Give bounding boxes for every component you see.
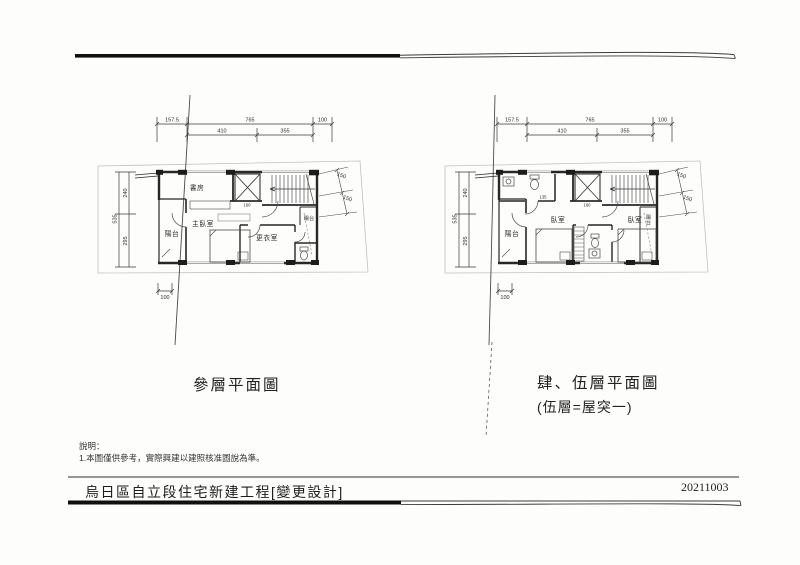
dim-label: 295 xyxy=(463,236,469,245)
closet-cabinet xyxy=(218,214,250,221)
bed xyxy=(210,230,250,262)
dim-label: 355 xyxy=(620,129,629,135)
project-title: 烏日區自立段住宅新建工程[變更設計] xyxy=(85,482,344,502)
boundary-line xyxy=(489,95,495,345)
plan-caption-4f-5f-block: 肆、伍層平面圖 (伍層=屋突一) xyxy=(537,371,660,417)
room-label-closet: 更衣室 xyxy=(256,233,278,242)
staircase xyxy=(610,174,655,204)
dim-label: 410 xyxy=(217,129,226,135)
top-rule-thick xyxy=(75,54,400,58)
toilet-icon xyxy=(300,247,308,260)
plan-caption-3f: 參層平面圖 xyxy=(193,373,281,395)
dim-label: 410 xyxy=(557,129,566,135)
notes-heading: 說明： xyxy=(79,440,265,452)
dim-label: 535 xyxy=(453,214,459,223)
dim-label: 765 xyxy=(245,118,254,124)
elevator-shaft xyxy=(575,174,600,201)
staircase xyxy=(270,174,315,204)
boundary-line xyxy=(175,95,190,345)
dim-label: 295 xyxy=(123,236,129,245)
room-label-balcony-left: 陽台 xyxy=(165,229,180,238)
plan-caption-4f-5f: 肆、伍層平面圖 xyxy=(537,371,660,393)
bottom-dimension-line xyxy=(496,283,514,295)
windows xyxy=(187,171,309,265)
floor-plan-3f: 157.5 765 100 410 355 535 240 295 100 15… xyxy=(90,95,370,345)
top-rule-thin-2 xyxy=(400,55,736,59)
dim-label: 157.5 xyxy=(165,118,179,124)
notes-item: 1.本圖僅供參考，實際興建以建照核准圖說為準。 xyxy=(79,452,265,464)
cabinet xyxy=(190,201,230,209)
room-label-bedroom-right: 臥室 xyxy=(628,215,643,224)
plan-caption-4f-5f-sub: (伍層=屋突一) xyxy=(537,397,660,417)
dim-label: 535 xyxy=(113,214,119,223)
dim-label: 765 xyxy=(585,118,594,124)
room-label-balcony-left: 陽台 xyxy=(505,229,520,238)
dim-label: 100 xyxy=(318,118,327,124)
dim-label: 240 xyxy=(123,188,129,197)
toilet-icon xyxy=(530,175,539,179)
dim-label: 100 xyxy=(160,295,169,301)
floor-plan-4f-5f: 157.5 765 100 410 355 535 240 295 100 15… xyxy=(430,95,710,345)
door-arcs xyxy=(512,201,624,242)
notes-block: 說明： 1.本圖僅供參考，實際興建以建照核准圖說為準。 xyxy=(79,440,265,464)
bottom-dimension-line xyxy=(156,283,174,295)
toilet-icon xyxy=(591,234,599,238)
dim-label: 100 xyxy=(658,118,667,124)
sink-icon xyxy=(589,249,600,258)
dim-label: 100 xyxy=(500,295,509,301)
room-label-balcony-right: 陽台 xyxy=(646,213,651,227)
bed xyxy=(536,229,572,262)
building-walls xyxy=(135,172,318,263)
dim-label: 240 xyxy=(463,188,469,197)
footer-rule-thin-2 xyxy=(401,501,741,506)
room-label-master-bedroom: 主臥室 xyxy=(192,219,214,228)
site-boundary xyxy=(445,161,708,273)
wardrobe-hatch xyxy=(574,231,584,258)
bathroom-center-fixtures xyxy=(574,227,600,261)
dim-label: 160 xyxy=(244,203,252,208)
scanned-drawing-sheet: { "document": { "footer": { "project_tit… xyxy=(0,0,800,565)
dim-label: 150 xyxy=(336,172,347,181)
room-label-study: 書房 xyxy=(190,183,205,192)
dim-label: 150 xyxy=(676,172,687,181)
bathroom-top-fixtures xyxy=(503,175,539,190)
sink-icon xyxy=(503,177,514,186)
boundary-line-extension xyxy=(486,342,492,437)
drawing-date: 20211003 xyxy=(681,480,729,495)
dim-label: 160 xyxy=(584,203,592,208)
dim-label: 150 xyxy=(682,195,693,204)
balcony-corner-mark xyxy=(162,249,170,257)
top-rule-thin-1 xyxy=(400,52,734,55)
dim-label: 157.5 xyxy=(505,118,519,124)
room-label-balcony-right: 陽台 xyxy=(304,214,314,222)
dim-label: 135 xyxy=(540,195,548,200)
room-label-bedroom-left: 臥室 xyxy=(551,215,566,224)
dim-label: 355 xyxy=(280,129,289,135)
dim-label: 150 xyxy=(342,195,353,204)
balcony-corner-mark xyxy=(502,249,510,257)
elevator-shaft xyxy=(235,174,260,201)
